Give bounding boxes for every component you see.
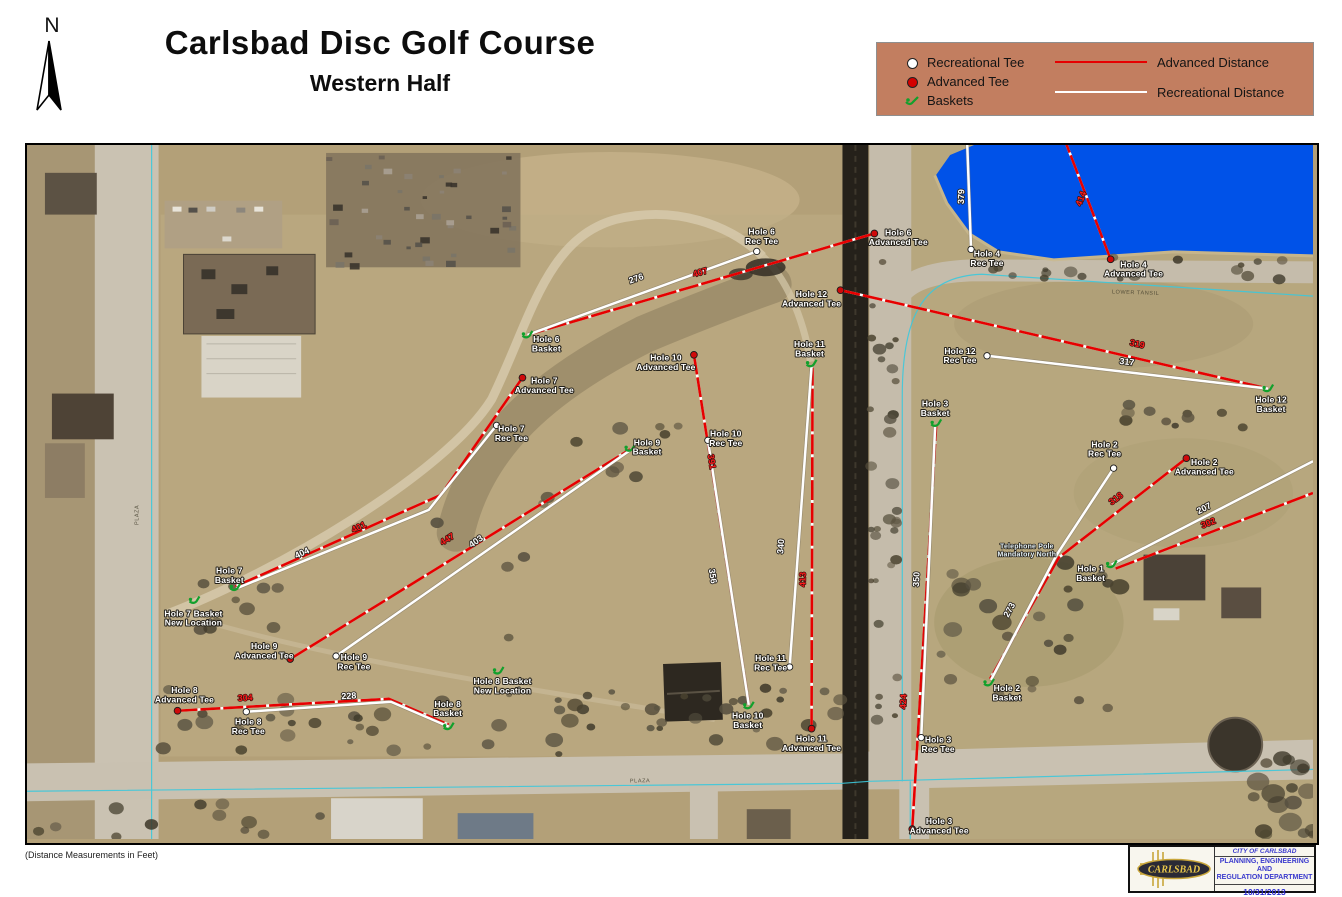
page: N Carlsbad Disc Golf Course Western Half… <box>0 0 1342 897</box>
hole-3-basket-marker-dot <box>930 421 933 424</box>
carlsbad-logo-icon: CARLSBAD <box>1132 848 1212 890</box>
distance-label-hole-8-adv: 304 <box>237 692 252 703</box>
hole-6-basket-label: Hole 6Basket <box>532 334 561 353</box>
aerial-map-svg: 4074143194133914474013044243183022763793… <box>27 145 1313 839</box>
legend-advanced-tee: Advanced Tee <box>927 74 1009 89</box>
distance-label-hole-3-adv: 424 <box>898 694 909 709</box>
hole-10-basket-marker-dot <box>743 703 746 706</box>
title-block: Carlsbad Disc Golf Course Western Half <box>110 24 650 97</box>
advanced-distance-line-icon <box>1055 61 1147 63</box>
stamp-department-line1: PLANNING, ENGINEERING AND <box>1220 858 1309 873</box>
hole-12-advanced-tee-marker <box>837 287 844 294</box>
hole-12-basket-marker-dot <box>1262 386 1265 389</box>
stamp-city: CITY OF CARLSBAD <box>1215 847 1314 857</box>
page-title: Carlsbad Disc Golf Course <box>110 24 650 62</box>
hole-8-basket-new-location-marker-dot <box>493 668 496 671</box>
legend: Recreational Tee Advanced Tee Baskets Ad… <box>876 42 1314 116</box>
legend-recreational-tee: Recreational Tee <box>927 55 1024 70</box>
distance-label-hole-11-adv: 413 <box>797 572 807 587</box>
stamp-text-block: CITY OF CARLSBAD PLANNING, ENGINEERING A… <box>1215 847 1314 891</box>
agency-stamp: CARLSBAD CITY OF CARLSBAD PLANNING, ENGI… <box>1128 845 1316 893</box>
basket-icon <box>904 95 920 108</box>
distance-label-hole-4-rec: 379 <box>956 189 967 204</box>
hole-8-basket-new-location-label: Hole 8 BasketNew Location <box>473 676 531 695</box>
hole-7-basket-label: Hole 7Basket <box>215 566 244 585</box>
hole-12-basket-label: Hole 12Basket <box>1255 395 1287 414</box>
distance-label-hole-8-rec: 228 <box>341 690 356 701</box>
north-arrow-icon <box>29 38 69 116</box>
telephone-pole-note-label: Telephone PoleMandatory North <box>998 544 1057 559</box>
distance-label-hole-3-rec: 350 <box>911 572 922 587</box>
hole-7-basket-marker-dot <box>230 585 233 588</box>
hole-7-rec-tee-label: Hole 7Rec Tee <box>495 423 528 442</box>
hole-11-basket-marker-dot <box>806 361 809 364</box>
hole-8-rec-tee-marker <box>243 709 249 715</box>
hole-11-rec-tee-marker <box>786 664 792 670</box>
hole-4-rec-tee-label: Hole 4Rec Tee <box>970 248 1003 267</box>
legend-advanced-distance: Advanced Distance <box>1157 55 1269 70</box>
carlsbad-logo: CARLSBAD <box>1130 847 1215 891</box>
advanced-tee-icon <box>907 77 918 88</box>
footnote: (Distance Measurements in Feet) <box>25 850 158 860</box>
hole-7-basket-new-location-marker-dot <box>189 598 192 601</box>
hole-4-advanced-tee-marker <box>1107 256 1114 263</box>
page-subtitle: Western Half <box>110 70 650 97</box>
hole-6-basket-marker-dot <box>522 332 525 335</box>
hole-3-rec-tee-label: Hole 3Rec Tee <box>922 735 955 754</box>
hole-6-rec-tee-label: Hole 6Rec Tee <box>745 226 778 245</box>
course-map: 4074143194133914474013044243183022763793… <box>25 143 1319 845</box>
hole-1-basket-label: Hole 1Basket <box>1076 564 1105 583</box>
hole-1-basket-marker-dot <box>1106 562 1109 565</box>
stamp-department-line2: REGULATION DEPARTMENT <box>1217 874 1313 881</box>
hole-6-advanced-tee-marker <box>871 230 878 237</box>
recreational-tee-icon <box>907 58 918 69</box>
stamp-date: 10/31/2013 <box>1215 885 1314 897</box>
hole-9-basket-marker-dot <box>624 446 627 449</box>
north-label: N <box>32 14 72 38</box>
hole-7-basket-new-location-label: Hole 7 BasketNew Location <box>164 608 222 627</box>
hole-3-basket-label: Hole 3Basket <box>921 399 950 418</box>
hole-8-basket-marker-dot <box>443 724 446 727</box>
road-label-2: PLAZA <box>630 778 650 784</box>
hole-9-rec-tee-marker <box>333 653 339 659</box>
hole-2-advanced-tee-marker <box>1183 455 1190 462</box>
road-label-1: PLAZA <box>135 505 141 525</box>
hole-8-advanced-tee-marker <box>174 707 181 714</box>
legend-recreational-distance: Recreational Distance <box>1157 85 1284 100</box>
distance-label-hole-12-rec: 317 <box>1119 356 1135 368</box>
hole-2-rec-tee-marker <box>1110 465 1116 471</box>
hole-7-advanced-tee-marker <box>519 374 526 381</box>
carlsbad-logo-text: CARLSBAD <box>1148 865 1200 876</box>
hole-10-basket-label: Hole 10Basket <box>732 711 764 730</box>
hole-10-advanced-tee-marker <box>691 351 698 358</box>
hole-8-rec-tee-label: Hole 8Rec Tee <box>232 717 265 736</box>
hole-3-rec-tee-marker <box>918 734 924 740</box>
stamp-department: PLANNING, ENGINEERING AND REGULATION DEP… <box>1215 857 1314 885</box>
hole-2-basket-label: Hole 2Basket <box>992 683 1021 702</box>
hole-12-rec-tee-label: Hole 12Rec Tee <box>943 346 976 365</box>
hole-11-advanced-tee-marker <box>808 725 815 732</box>
north-arrow: N <box>26 14 72 121</box>
hole-9-basket-label: Hole 9Basket <box>633 437 662 456</box>
hole-2-basket-marker-dot <box>983 680 986 683</box>
hole-2-rec-tee-label: Hole 2Rec Tee <box>1088 439 1121 458</box>
distance-label-hole-11-rec: 340 <box>775 539 786 555</box>
hole-11-basket-label: Hole 11Basket <box>794 339 825 358</box>
hole-12-rec-tee-marker <box>984 353 990 359</box>
recreational-distance-line-icon <box>1055 91 1147 93</box>
legend-baskets: Baskets <box>927 93 973 108</box>
hole-8-basket-label: Hole 8Basket <box>433 699 462 718</box>
hole-6-rec-tee-marker <box>754 248 760 254</box>
hole-11-rec-tee-label: Hole 11Rec Tee <box>754 653 787 672</box>
hole-9-rec-tee-label: Hole 9Rec Tee <box>337 652 370 671</box>
hole-10-rec-tee-label: Hole 10Rec Tee <box>709 428 742 447</box>
